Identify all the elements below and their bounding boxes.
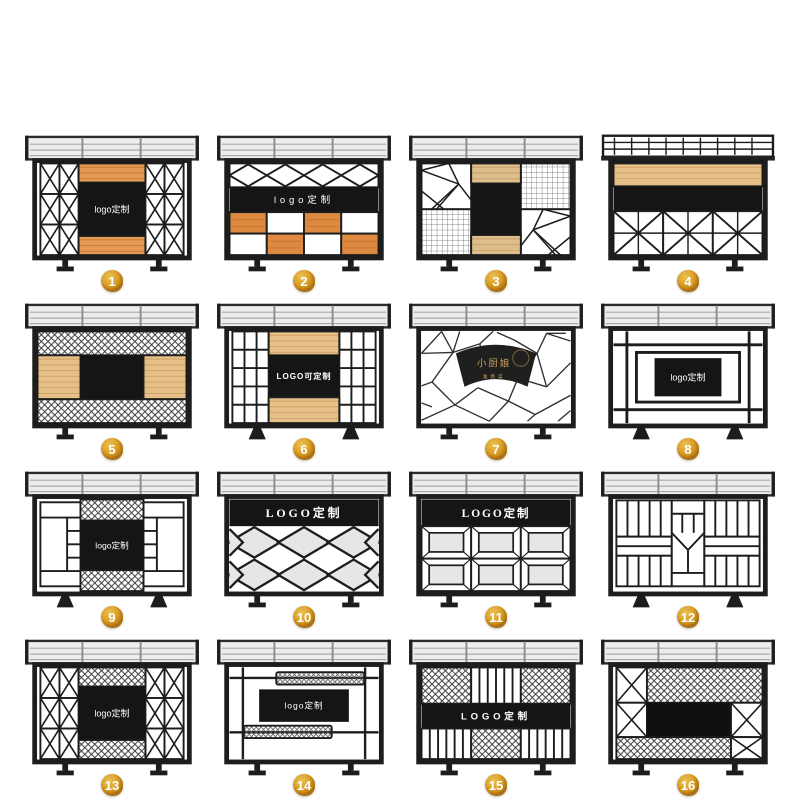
counter-top [217,472,391,497]
counter-drawing: logo定制 [19,466,205,614]
item-number-badge: 10 [293,606,315,628]
logo-label: LOGO定制 [266,506,343,520]
logo-label: logo定制 [94,204,129,215]
counter-illustration: LOGO定制 [211,466,397,614]
counter-top [409,472,583,497]
logo-label: LOGO可定制 [277,371,332,381]
item-number-badge: 14 [293,774,315,796]
counter-body: logo定制 [35,497,190,594]
counter-drawing [595,634,781,782]
logo-label: logo定制 [284,700,323,711]
counter-top [409,304,583,329]
counter-item-6: LOGO可定制 6 [211,298,397,460]
counter-top [217,640,391,665]
counter-illustration: 小厨娘淮扬菜 [403,298,589,446]
logo-label: LOGO定制 [461,711,531,723]
counter-illustration: logo定制 [595,298,781,446]
counter-drawing [595,466,781,614]
counter-body: LOGO定制 [419,665,574,762]
item-number-badge: 3 [485,270,507,292]
item-number-badge: 8 [677,438,699,460]
counter-drawing: LOGO定制 [403,634,589,782]
counter-body: LOGO可定制 [227,329,382,426]
counter-drawing [19,298,205,446]
counter-body: logo定制 [227,161,382,258]
counter-drawing [403,130,589,278]
counter-top [25,136,199,161]
logo-label: logo定制 [274,194,334,206]
counter-item-15: LOGO定制 15 [403,634,589,796]
item-number-badge: 15 [485,774,507,796]
counter-top [601,136,775,161]
counter-body [611,665,766,762]
counter-drawing: logo定制 [211,634,397,782]
counter-item-8: logo定制 8 [595,298,781,460]
counter-body [419,161,574,258]
logo-label: logo定制 [94,708,129,719]
counter-top [409,640,583,665]
counter-illustration: logo定制 [211,634,397,782]
counter-body: logo定制 [611,329,766,426]
counter-body: LOGO定制 [227,497,382,594]
counter-body: logo定制 [35,161,190,258]
counter-illustration: LOGO定制 [403,634,589,782]
counter-illustration [19,298,205,446]
counter-illustration: logo定制 [19,466,205,614]
counter-item-4: 4 [595,130,781,292]
counter-item-13: logo定制 13 [19,634,205,796]
counter-top [409,136,583,161]
item-number-badge: 9 [101,606,123,628]
logo-label: LOGO定制 [462,506,531,520]
counter-top [25,304,199,329]
logo-label: logo定制 [670,372,705,383]
counter-item-3: 3 [403,130,589,292]
counter-item-1: logo定制 1 [19,130,205,292]
counter-drawing [595,130,781,278]
counter-top [25,640,199,665]
counter-illustration: logo定制 [211,130,397,278]
counter-illustration [595,466,781,614]
counter-item-10: LOGO定制 10 [211,466,397,628]
item-number-badge: 5 [101,438,123,460]
counter-item-5: 5 [19,298,205,460]
item-number-badge: 12 [677,606,699,628]
item-number-badge: 1 [101,270,123,292]
item-number-badge: 7 [485,438,507,460]
item-number-badge: 16 [677,774,699,796]
counter-body [35,329,190,426]
counter-body [611,161,766,258]
counter-item-2: logo定制 2 [211,130,397,292]
counter-item-9: logo定制 9 [19,466,205,628]
counter-drawing: logo定制 [19,634,205,782]
catalog-grid: logo定制 1 logo定制 2 3 4 5 LOGO可定制 6 小厨娘淮扬菜… [0,0,800,796]
counter-catalog: logo定制 1 logo定制 2 3 4 5 LOGO可定制 6 小厨娘淮扬菜… [0,0,800,796]
counter-body [611,497,766,594]
counter-illustration: LOGO可定制 [211,298,397,446]
counter-item-16: 16 [595,634,781,796]
counter-body: LOGO定制 [419,497,574,594]
counter-illustration: LOGO定制 [403,466,589,614]
counter-top [601,472,775,497]
counter-drawing: logo定制 [595,298,781,446]
counter-drawing: logo定制 [19,130,205,278]
counter-body: logo定制 [227,665,382,762]
item-number-badge: 6 [293,438,315,460]
counter-drawing: LOGO定制 [403,466,589,614]
counter-item-12: 12 [595,466,781,628]
counter-body: 小厨娘淮扬菜 [419,329,574,426]
counter-item-14: logo定制 14 [211,634,397,796]
logo-label: 淮扬菜 [483,373,506,380]
logo-label: logo定制 [95,539,128,550]
counter-drawing: LOGO可定制 [211,298,397,446]
counter-drawing: logo定制 [211,130,397,278]
counter-top [217,136,391,161]
counter-top [601,640,775,665]
counter-illustration [595,130,781,278]
counter-illustration: logo定制 [19,634,205,782]
item-number-badge: 2 [293,270,315,292]
counter-illustration [595,634,781,782]
counter-top [217,304,391,329]
item-number-badge: 13 [101,774,123,796]
logo-label: 小厨娘 [477,358,511,370]
item-number-badge: 11 [485,606,507,628]
counter-item-11: LOGO定制 11 [403,466,589,628]
counter-body: logo定制 [35,665,190,762]
item-number-badge: 4 [677,270,699,292]
counter-illustration [403,130,589,278]
counter-top [601,304,775,329]
counter-illustration: logo定制 [19,130,205,278]
counter-drawing: LOGO定制 [211,466,397,614]
counter-drawing: 小厨娘淮扬菜 [403,298,589,446]
counter-top [25,472,199,497]
counter-item-7: 小厨娘淮扬菜 7 [403,298,589,460]
